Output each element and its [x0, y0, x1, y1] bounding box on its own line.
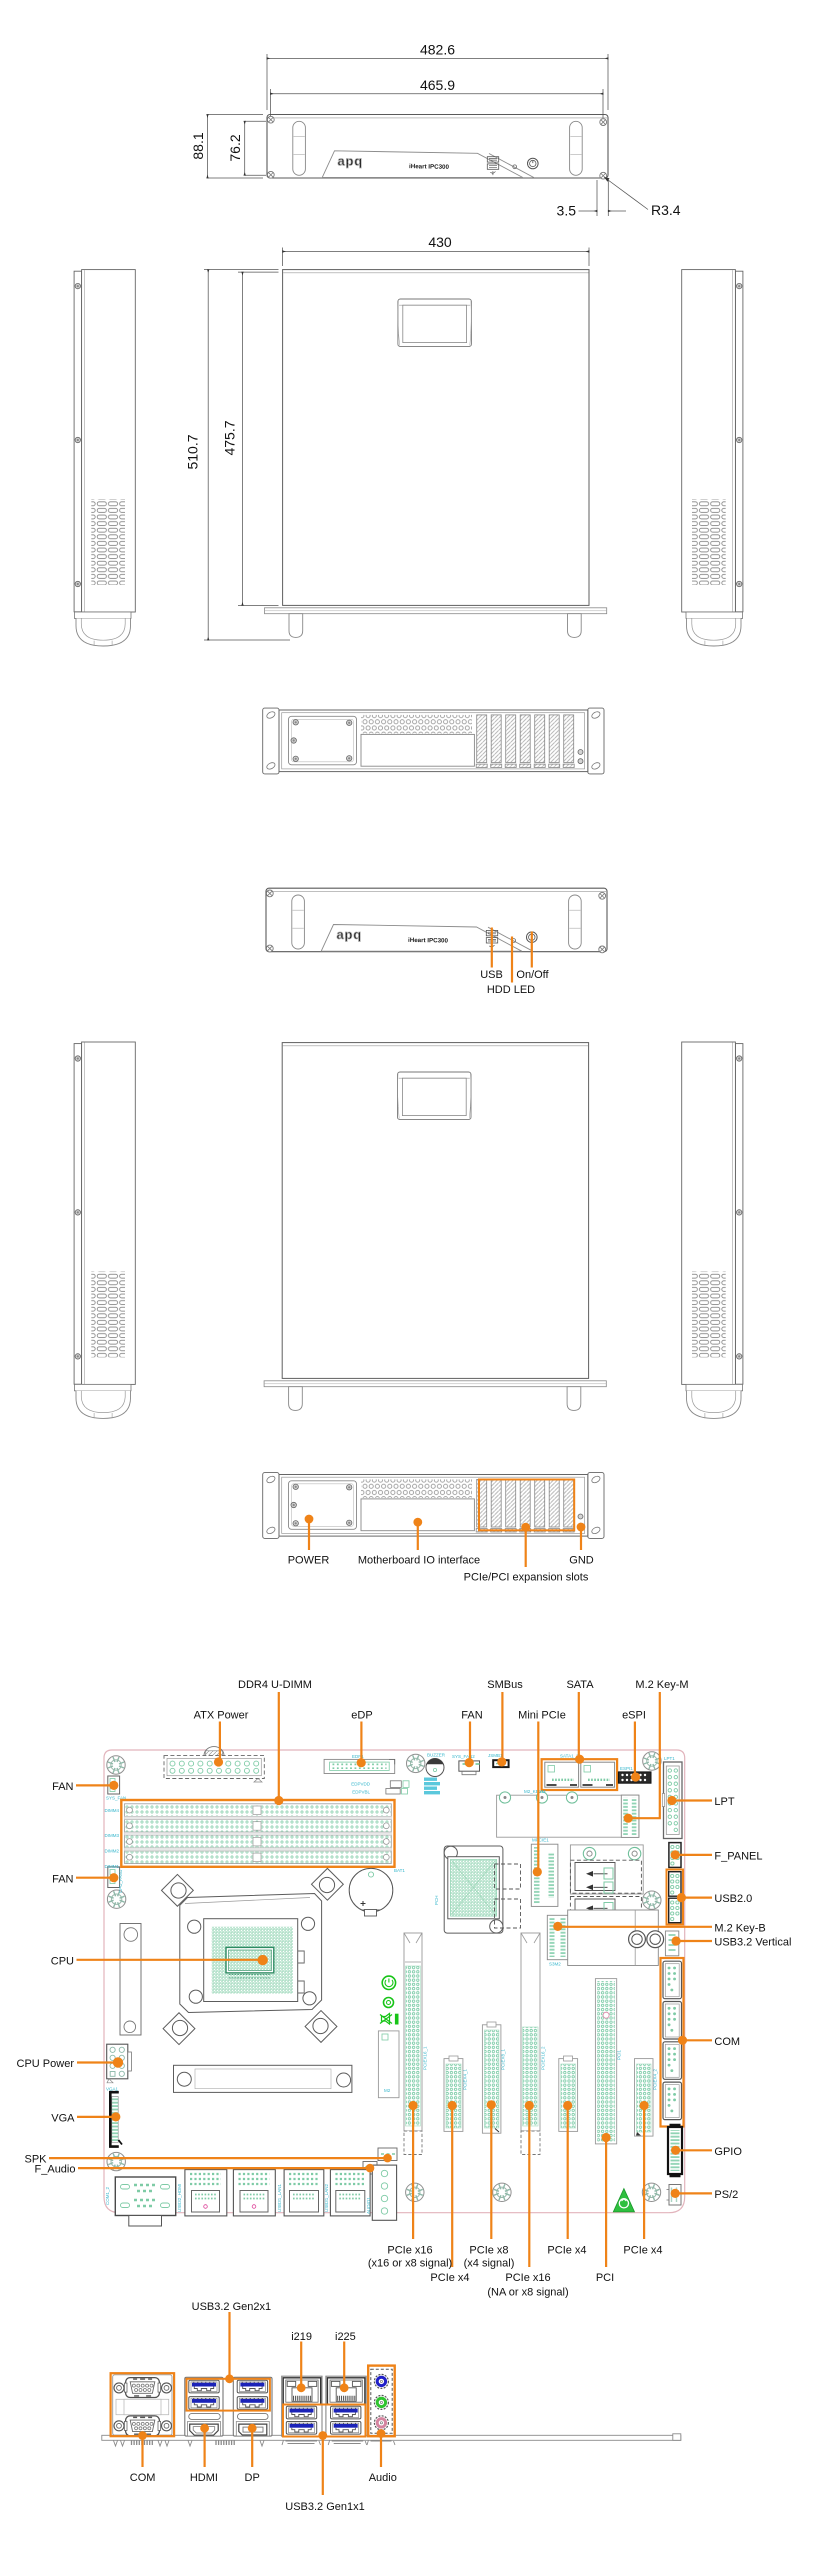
svg-text:USB3.2 Vertical: USB3.2 Vertical: [714, 1937, 791, 1949]
svg-text:S3M2: S3M2: [549, 1962, 561, 1967]
svg-text:USB2.0: USB2.0: [714, 1893, 752, 1905]
svg-text:Motherboard IO interface: Motherboard IO interface: [358, 1555, 480, 1567]
svg-text:DDR4 U-DIMM: DDR4 U-DIMM: [238, 1679, 312, 1691]
svg-text:475.7: 475.7: [222, 420, 238, 455]
svg-text:eDP: eDP: [351, 1710, 372, 1722]
svg-text:ATX Power: ATX Power: [194, 1710, 249, 1722]
svg-text:PCIe x4: PCIe x4: [623, 2244, 662, 2256]
svg-text:DP: DP: [245, 2472, 260, 2484]
svg-text:DIMM1: DIMM1: [105, 1864, 120, 1869]
svg-text:DIMM3: DIMM3: [105, 1833, 120, 1838]
svg-text:JSMB1: JSMB1: [488, 1753, 503, 1758]
svg-text:88.1: 88.1: [190, 132, 206, 159]
svg-text:USB3.2 Gen1x1: USB3.2 Gen1x1: [285, 2501, 365, 2513]
svg-text:482.6: 482.6: [420, 42, 455, 58]
svg-text:PCIe x16: PCIe x16: [387, 2244, 432, 2256]
svg-text:SMBus: SMBus: [487, 1679, 523, 1691]
svg-text:430: 430: [428, 234, 452, 250]
svg-text:PCH: PCH: [434, 1895, 439, 1905]
svg-text:CPU_FAN1: CPU_FAN1: [118, 1869, 123, 1893]
svg-text:CPU: CPU: [51, 1956, 74, 1968]
svg-text:PCIEX4_1: PCIEX4_1: [463, 2068, 468, 2090]
svg-text:GPIO: GPIO: [714, 2146, 742, 2158]
svg-text:USB31_LAN2: USB31_LAN2: [324, 2183, 329, 2212]
svg-text:eSPI: eSPI: [622, 1710, 646, 1722]
svg-text:BAT1: BAT1: [394, 1868, 405, 1873]
svg-text:FAN: FAN: [461, 1710, 482, 1722]
svg-text:FAN: FAN: [52, 1873, 73, 1885]
svg-text:3.5: 3.5: [557, 203, 577, 219]
svg-text:PCIe x4: PCIe x4: [430, 2272, 469, 2284]
svg-text:M2: M2: [384, 2088, 391, 2093]
svg-text:Mini PCIe: Mini PCIe: [518, 1710, 566, 1722]
svg-text:DIMM2: DIMM2: [105, 1849, 120, 1854]
svg-text:VGA1: VGA1: [106, 2087, 119, 2092]
svg-text:On/Off: On/Off: [516, 969, 549, 981]
svg-text:LPT1: LPT1: [664, 1756, 675, 1761]
svg-text:PCIEX16_2: PCIEX16_2: [541, 2046, 546, 2070]
svg-text:PCIe x8: PCIe x8: [469, 2244, 508, 2256]
svg-text:(NA or x8 signal): (NA or x8 signal): [487, 2286, 568, 2298]
svg-text:SATA: SATA: [566, 1679, 594, 1691]
svg-text:(x4 signal): (x4 signal): [464, 2258, 515, 2270]
svg-text:Audio: Audio: [369, 2472, 397, 2484]
svg-text:VGA: VGA: [51, 2113, 75, 2125]
svg-text:COM: COM: [130, 2472, 156, 2484]
svg-text:COM1_2: COM1_2: [105, 2186, 110, 2205]
svg-text:ESPI1: ESPI1: [620, 1766, 633, 1771]
svg-text:CPU Power: CPU Power: [17, 2058, 75, 2070]
svg-text:PCIe x4: PCIe x4: [547, 2244, 586, 2256]
svg-text:i219: i219: [291, 2331, 312, 2343]
svg-text:PCIEX8_1: PCIEX8_1: [501, 2048, 506, 2070]
svg-text:PCI1: PCI1: [617, 2049, 622, 2060]
svg-text:PCI: PCI: [596, 2272, 614, 2284]
svg-text:PCIe/PCI expansion slots: PCIe/PCI expansion slots: [464, 1572, 589, 1584]
svg-text:76.2: 76.2: [227, 134, 243, 161]
svg-text:M.2 Key-M: M.2 Key-M: [635, 1679, 688, 1691]
svg-text:PS/2: PS/2: [714, 2189, 738, 2201]
svg-text:510.7: 510.7: [185, 434, 201, 469]
svg-text:LPT: LPT: [714, 1796, 734, 1808]
svg-text:M.2 Key-B: M.2 Key-B: [714, 1922, 765, 1934]
svg-text:F_Audio: F_Audio: [35, 2164, 76, 2176]
svg-text:HDD LED: HDD LED: [487, 984, 535, 996]
svg-text:EDPVBL: EDPVBL: [352, 1790, 370, 1795]
svg-text:F_PANEL: F_PANEL: [714, 1850, 762, 1862]
svg-text:MPCIE1: MPCIE1: [532, 1838, 549, 1843]
svg-text:R3.4: R3.4: [651, 202, 681, 218]
svg-text:USB: USB: [480, 969, 503, 981]
svg-text:USB3.2 Gen2x1: USB3.2 Gen2x1: [192, 2301, 272, 2313]
svg-text:USB32_HDMI: USB32_HDMI: [177, 2184, 182, 2212]
svg-text:GND: GND: [569, 1555, 594, 1567]
svg-text:i225: i225: [335, 2331, 356, 2343]
svg-text:COM: COM: [714, 2036, 740, 2048]
svg-text:USB31_LAN1: USB31_LAN1: [277, 2183, 282, 2212]
svg-text:PCIEX16_1: PCIEX16_1: [423, 2046, 428, 2070]
svg-text:465.9: 465.9: [420, 77, 455, 93]
svg-text:(x16 or x8 signal): (x16 or x8 signal): [368, 2258, 452, 2270]
svg-text:PCIEX4_2: PCIEX4_2: [653, 2068, 658, 2090]
svg-text:BUZZER: BUZZER: [427, 1753, 446, 1758]
svg-text:M2_KEYM: M2_KEYM: [524, 1789, 546, 1794]
svg-text:EDPVDD: EDPVDD: [351, 1782, 371, 1787]
svg-text:FAN: FAN: [52, 1781, 73, 1793]
svg-text:POWER: POWER: [288, 1555, 330, 1567]
svg-text:SYS_FAN2: SYS_FAN2: [452, 1754, 475, 1759]
svg-text:AUDIO1: AUDIO1: [366, 2197, 371, 2214]
svg-text:PCIe x16: PCIe x16: [505, 2272, 550, 2284]
svg-text:HDMI: HDMI: [190, 2472, 218, 2484]
svg-text:DIMM4: DIMM4: [105, 1808, 120, 1813]
